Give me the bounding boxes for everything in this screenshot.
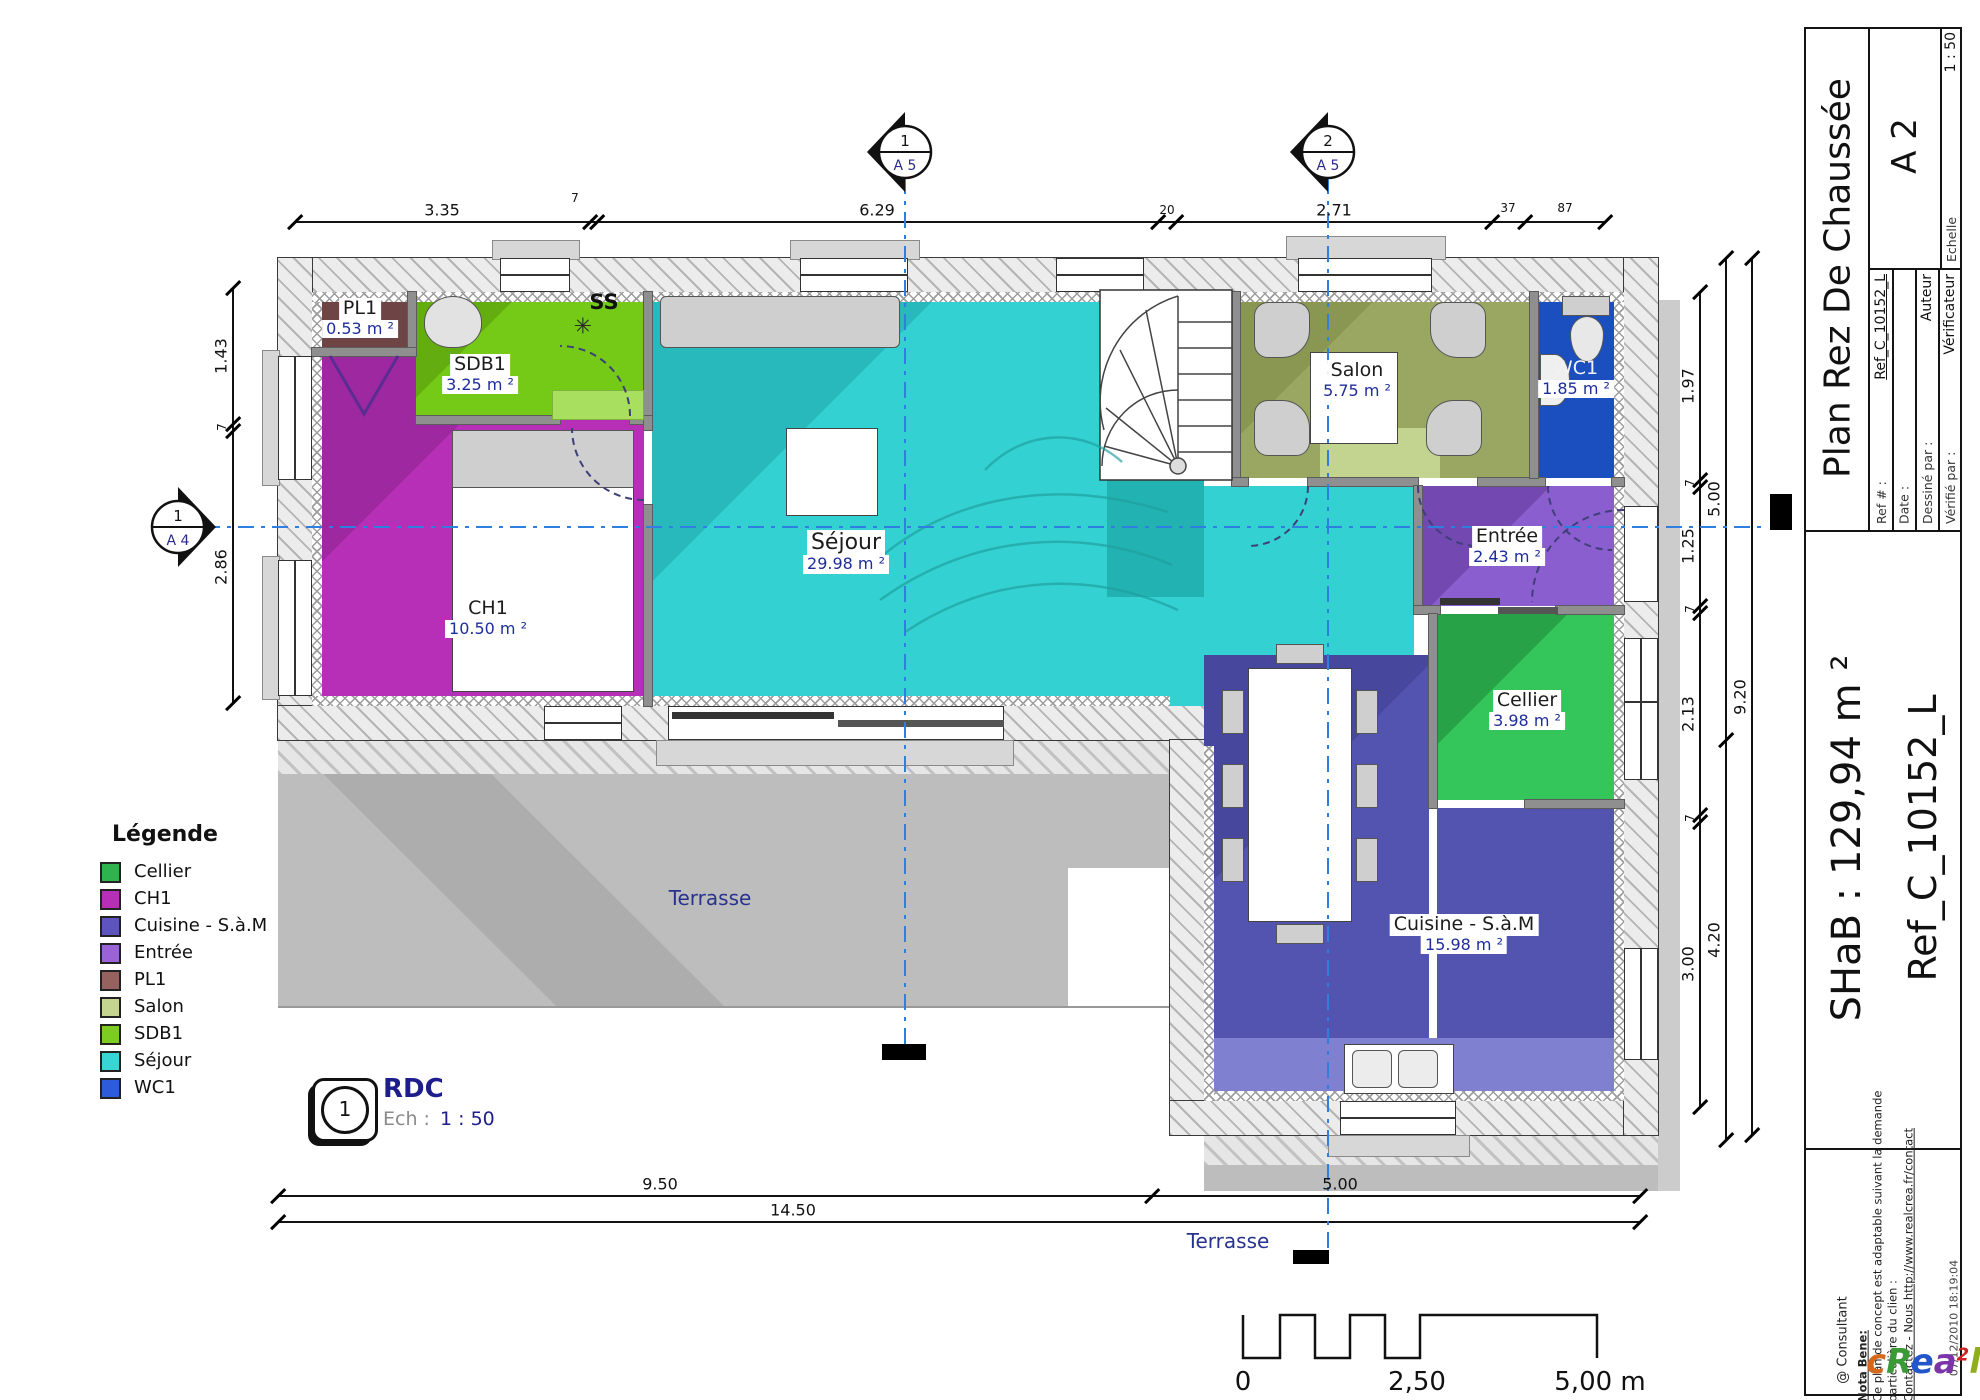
- dim-label: 2.71: [1316, 201, 1352, 220]
- field-checked-by: Vérifié par : Vérificateur: [1942, 274, 1958, 524]
- rdc-view-number: 1: [339, 1097, 352, 1121]
- legend-swatch-pl1: [100, 970, 121, 991]
- legend-item-wc1: WC1: [134, 1077, 176, 1098]
- legend-item-ch1: CH1: [134, 888, 172, 909]
- field-ref: Ref # : Ref_C_10152_L: [1873, 274, 1889, 524]
- dim-label: 1.43: [212, 338, 231, 374]
- sheet-number: A 2: [1885, 118, 1925, 174]
- room-label-salon: Salon5.75 m ²: [1319, 360, 1395, 400]
- floor-plan-sheet: ✳: [0, 0, 1980, 1400]
- crea-logo: cRea2l: [1866, 1342, 1980, 1382]
- dim-label: 20: [1159, 203, 1174, 217]
- section-marker-a5-1-sheet: A 5: [894, 158, 917, 174]
- scalebar-label-500: 5,00 m: [1554, 1367, 1645, 1397]
- room-label-entree: Entrée2.43 m ²: [1469, 526, 1545, 566]
- section-marker-a5-1-num: 1: [900, 132, 910, 150]
- legend-swatch-sdb1: [100, 1024, 121, 1045]
- section-marker-a4-num: 1: [173, 507, 183, 525]
- room-label-ch1: CH110.50 m ²: [445, 598, 531, 638]
- ref-big: Ref_C_10152_L: [1901, 694, 1945, 981]
- legend-item-cellier: Cellier: [134, 861, 191, 882]
- room-label-cuisine: Cuisine - S.à.M15.98 m ²: [1390, 914, 1539, 954]
- room-label-cellier: Cellier3.98 m ²: [1489, 690, 1565, 730]
- legend-swatch-salon: [100, 997, 121, 1018]
- section-marker-a5-2-num: 2: [1323, 132, 1333, 150]
- field-date: Date :: [1897, 274, 1912, 524]
- room-label-sejour: Séjour29.98 m ²: [803, 530, 889, 574]
- dim-label: 1.25: [1679, 528, 1698, 564]
- legend-item-pl1: PL1: [134, 969, 166, 990]
- dim-label: 3.00: [1679, 946, 1698, 982]
- shab-area: SHaB : 129,94 m ²: [1824, 655, 1870, 1022]
- section-marker-a5-2-sheet: A 5: [1317, 158, 1340, 174]
- dim-label: 7: [1683, 814, 1697, 822]
- dim-label: 37: [1500, 201, 1515, 215]
- legend-swatch-sejour: [100, 1051, 121, 1072]
- field-drawn-by: Dessiné par : Auteur: [1919, 274, 1935, 524]
- legend-item-salon: Salon: [134, 996, 184, 1017]
- dim-label: 2.13: [1679, 696, 1698, 732]
- consultant-credit: @ Consultant: [1836, 1296, 1851, 1383]
- scalebar-label-0: 0: [1235, 1367, 1252, 1397]
- rdc-title: RDC: [383, 1074, 444, 1104]
- terrasse-label-left: Terrasse: [669, 886, 752, 910]
- room-label-pl1: PL10.53 m ²: [322, 298, 398, 338]
- legend-item-sejour: Séjour: [134, 1050, 191, 1071]
- sheet-title: Plan Rez De Chaussée: [1818, 78, 1859, 478]
- legend-item-entree: Entrée: [134, 942, 193, 963]
- dim-label: 1.97: [1679, 368, 1698, 404]
- dim-label: 7: [215, 423, 229, 431]
- dim-label: 7: [571, 191, 579, 205]
- room-label-wc1: WC11.85 m ²: [1538, 358, 1614, 398]
- dim-label: 9.50: [642, 1175, 678, 1194]
- legend-swatch-cellier: [100, 862, 121, 883]
- legend-swatch-wc1: [100, 1078, 121, 1099]
- rdc-scale-value: 1 : 50: [440, 1108, 495, 1130]
- dim-label: 5.00: [1705, 481, 1724, 517]
- dim-label: 87: [1557, 201, 1572, 215]
- legend-item-cuisine: Cuisine - S.à.M: [134, 915, 267, 936]
- dim-label: 2.86: [212, 549, 231, 585]
- dim-label: 9.20: [1731, 679, 1750, 715]
- section-marker-a4-sheet: A 4: [167, 533, 190, 549]
- dim-label: 7: [1683, 605, 1697, 613]
- dim-label: 6.29: [859, 201, 895, 220]
- legend-title: Légende: [112, 822, 218, 847]
- dim-label: 14.50: [770, 1201, 816, 1220]
- dim-label: 5.00: [1322, 1175, 1358, 1194]
- legend-swatch-entree: [100, 943, 121, 964]
- room-label-sdb1: SDB13.25 m ²: [442, 354, 518, 394]
- dim-label: 3.35: [424, 201, 460, 220]
- terrasse-label-bottom: Terrasse: [1187, 1229, 1270, 1253]
- sdb1-ss-note: SS: [589, 290, 618, 314]
- dim-label: 7: [1683, 479, 1697, 487]
- legend-item-sdb1: SDB1: [134, 1023, 183, 1044]
- legend-swatch-ch1: [100, 889, 121, 910]
- field-echelle: Echelle 1 : 50: [1943, 32, 1959, 262]
- legend-swatch-cuisine: [100, 916, 121, 937]
- dim-label: 4.20: [1705, 922, 1724, 958]
- scalebar-label-250: 2,50: [1388, 1367, 1446, 1397]
- rdc-scale-label: Ech :: [383, 1108, 430, 1130]
